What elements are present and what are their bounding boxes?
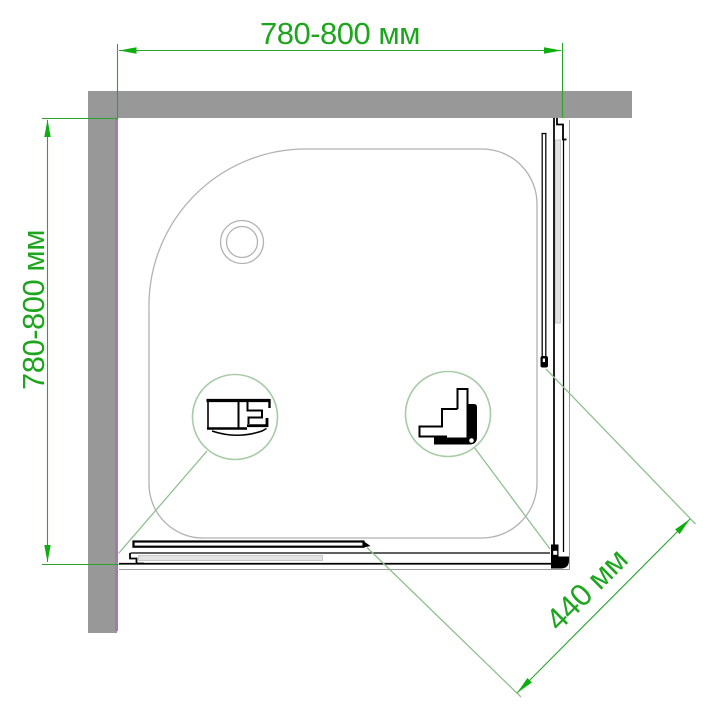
dimension-depth-label: 780-800 мм <box>16 230 51 390</box>
bottom-sliding-door <box>134 542 364 547</box>
walls <box>88 91 632 633</box>
detail-callout-wall-profile <box>119 375 278 554</box>
bottom-door-end-tip <box>363 541 371 548</box>
top-wall <box>88 91 632 118</box>
bottom-glass-panel <box>139 556 323 561</box>
drain-icon <box>221 221 264 264</box>
callout-circle-left <box>193 375 278 460</box>
detail-callout-corner-profile <box>406 372 551 550</box>
left-wall <box>88 91 117 633</box>
right-door-assembly <box>541 118 567 552</box>
enclosure-frame <box>119 120 570 570</box>
shower-enclosure-diagram: 780-800 мм 780-800 мм 440 мм <box>0 0 720 718</box>
left-wall-inner-face <box>115 118 118 631</box>
corner-junction-profile <box>551 545 569 569</box>
bottom-door-assembly <box>119 541 569 569</box>
callout-leader-right <box>474 447 550 549</box>
tray-outline <box>149 149 537 538</box>
right-glass-panel <box>556 140 561 323</box>
callout-leader-left <box>119 451 208 554</box>
dimension-width-label: 780-800 мм <box>260 16 420 51</box>
right-wall-bracket <box>557 118 567 140</box>
shower-tray <box>149 149 537 538</box>
